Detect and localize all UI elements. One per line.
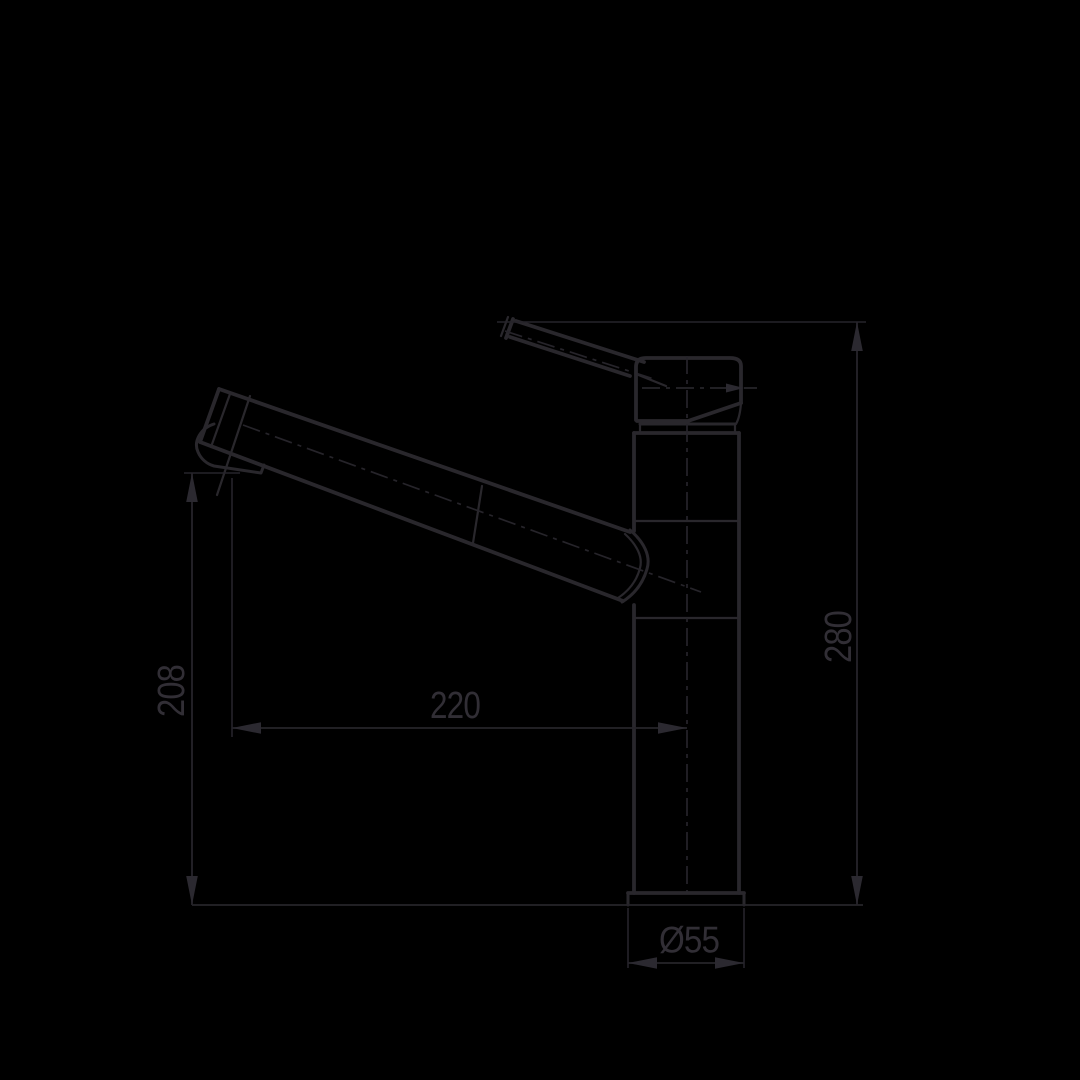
faucet-lever bbox=[501, 317, 666, 386]
head-outline bbox=[636, 358, 741, 420]
faucet-base bbox=[628, 893, 744, 905]
faucet-head bbox=[636, 358, 757, 432]
aerator-outline bbox=[196, 424, 264, 473]
dimensions: 280 208 220 Ø55 bbox=[151, 322, 866, 968]
head-bottom-tilt bbox=[637, 403, 741, 421]
dimension-outlet-height: 208 bbox=[151, 473, 240, 905]
lever-inner-edge bbox=[636, 374, 666, 386]
spout-top-edge bbox=[219, 389, 630, 532]
dimension-base-diameter: Ø55 bbox=[628, 908, 744, 968]
lever-bottom-edge bbox=[510, 337, 630, 376]
spout-mid-seam bbox=[473, 486, 482, 543]
dimension-label-overall-height: 280 bbox=[818, 611, 860, 663]
drawing-stage: 280 208 220 Ø55 bbox=[0, 0, 1080, 1080]
faucet-technical-drawing: 280 208 220 Ø55 bbox=[0, 0, 1080, 1080]
faucet-column bbox=[634, 356, 739, 893]
dimension-overall-height: 280 bbox=[497, 322, 866, 905]
nozzle-axis-line bbox=[217, 396, 250, 495]
dimension-label-outlet-height: 208 bbox=[151, 665, 193, 717]
dimension-label-base-diameter: Ø55 bbox=[659, 920, 719, 961]
faucet-outline bbox=[196, 317, 757, 905]
faucet-spout bbox=[196, 389, 701, 602]
dimension-spout-reach: 220 bbox=[232, 478, 687, 737]
dimension-label-spout-reach: 220 bbox=[430, 685, 480, 727]
